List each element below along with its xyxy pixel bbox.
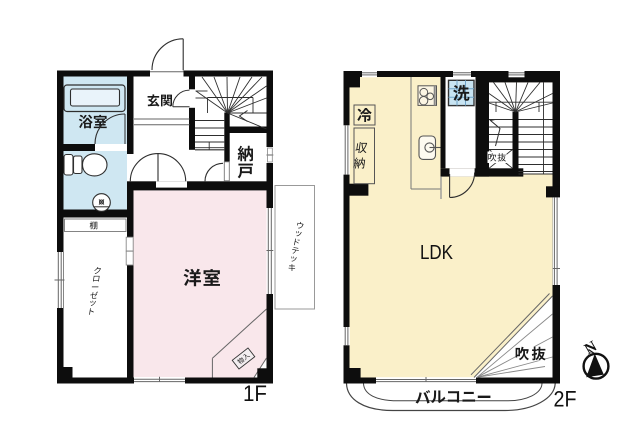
svg-text:1F: 1F (243, 381, 267, 406)
svg-text:LDK: LDK (420, 242, 454, 264)
svg-text:2F: 2F (554, 387, 577, 412)
